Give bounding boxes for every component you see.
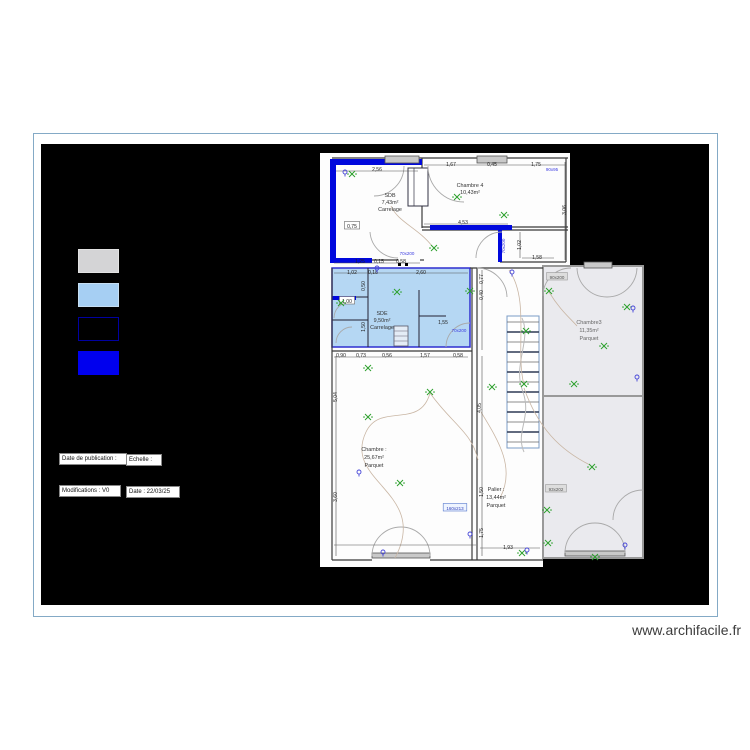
svg-text:1,67: 1,67 <box>446 162 456 168</box>
svg-text:1,25: 1,25 <box>355 259 365 265</box>
window-sdb <box>385 156 419 163</box>
dimension-label: 2,56 <box>372 167 382 173</box>
dimension-label: 160x213 <box>443 504 467 512</box>
svg-text:70x200: 70x200 <box>400 251 415 256</box>
svg-text:93x202: 93x202 <box>549 487 564 492</box>
room-area-sdb: 7,43m² <box>382 200 399 206</box>
dimension-label: 90x95 <box>546 167 559 172</box>
french-door-rail-chambre <box>372 553 430 558</box>
shower-tray <box>394 326 408 346</box>
dimension-label: 0,58 <box>453 353 463 359</box>
svg-text:0,73: 0,73 <box>356 353 366 359</box>
svg-text:2,60: 2,60 <box>416 270 426 276</box>
svg-text:5,04: 5,04 <box>333 392 339 402</box>
sdb-closet <box>408 168 428 206</box>
dimension-label: 1,55 <box>438 320 448 326</box>
dimension-label: 0,58 <box>396 259 406 265</box>
svg-text:1,75: 1,75 <box>531 162 541 168</box>
svg-text:70x200: 70x200 <box>452 328 467 333</box>
svg-text:1,58: 1,58 <box>532 255 542 261</box>
dimension-label: 2,60 <box>416 270 426 276</box>
room-floor-chambre1: Parquet <box>365 463 384 469</box>
svg-text:0,58: 0,58 <box>396 259 406 265</box>
dimension-label: 0,56 <box>382 353 392 359</box>
dimension-label: 0,50 <box>361 281 367 291</box>
svg-text:160x213: 160x213 <box>446 506 464 511</box>
svg-text:1,55: 1,55 <box>438 320 448 326</box>
dimension-label: 93x202 <box>546 485 567 493</box>
svg-text:0,45: 0,45 <box>487 162 497 168</box>
svg-text:4,05: 4,05 <box>477 403 483 413</box>
svg-text:1,50: 1,50 <box>479 487 485 497</box>
svg-text:0,75: 0,75 <box>347 224 357 230</box>
dimension-label: 0,40 <box>479 290 485 300</box>
room-label-chambre1: Chambre : <box>361 447 386 453</box>
sheet-gray-rooms <box>543 266 643 558</box>
svg-text:0,40: 0,40 <box>479 290 485 300</box>
svg-text:1,93: 1,93 <box>503 545 513 551</box>
room-area-chambre1: 25,67m² <box>364 455 384 461</box>
dimension-label: 70x200 <box>452 328 467 333</box>
dimension-label: 0,75 <box>344 222 359 230</box>
dimension-label: 5,04 <box>333 392 339 402</box>
dimension-label: 1,50 <box>361 322 367 332</box>
room-label-palier: Palier : <box>488 487 505 493</box>
svg-text:0,90: 0,90 <box>336 353 346 359</box>
svg-text:2,56: 2,56 <box>372 167 382 173</box>
svg-text:0,58: 0,58 <box>453 353 463 359</box>
room-floor-sde: Carrelage <box>370 325 394 331</box>
svg-text:0,15: 0,15 <box>374 259 384 265</box>
room-area-chambre4: 10,43m² <box>460 190 480 196</box>
dimension-label: 70x200 <box>400 251 415 256</box>
svg-text:1,02: 1,02 <box>347 270 357 276</box>
dimension-label: 0,73 <box>356 353 366 359</box>
room-floor-chambre3: Parquet <box>580 336 599 342</box>
dimension-label: 0,77 <box>479 274 485 284</box>
room-label-chambre3: Chambre3 <box>576 320 601 326</box>
dimension-label: 1,57 <box>420 353 430 359</box>
french-door-rail-gray-room <box>565 551 625 556</box>
window-chambre3 <box>584 262 612 268</box>
dimension-label: 70x200 <box>501 238 506 253</box>
room-area-palier: 13,44m² <box>486 495 506 501</box>
svg-text:3,60: 3,60 <box>333 492 339 502</box>
svg-text:0,56: 0,56 <box>382 353 392 359</box>
svg-text:70x200: 70x200 <box>501 238 506 253</box>
dimension-label: 1,02 <box>347 270 357 276</box>
sheet-top <box>320 153 570 267</box>
svg-text:1,02: 1,02 <box>517 240 523 250</box>
room-area-chambre3: 11,35m² <box>579 328 599 334</box>
room-floor-sdb: Carrelage <box>378 207 402 213</box>
dimension-label: 1,25 <box>355 259 365 265</box>
room-label-sdb: SDB <box>384 193 395 199</box>
svg-text:90x95: 90x95 <box>546 167 559 172</box>
canvas: Date de publication : Echelle : Modifica… <box>0 0 750 750</box>
staircase <box>507 316 539 452</box>
room-area-sde: 9,50m² <box>374 318 391 324</box>
dimension-label: 1,58 <box>532 255 542 261</box>
svg-text:1,75: 1,75 <box>479 528 485 538</box>
room-label-chambre4: Chambre 4 <box>457 183 484 189</box>
dimension-label: 4,53 <box>458 220 468 226</box>
svg-text:3,06: 3,06 <box>562 205 568 215</box>
plan-sheets <box>320 153 643 567</box>
svg-text:0,77: 0,77 <box>479 274 485 284</box>
dimension-label: 1,50 <box>479 487 485 497</box>
svg-text:90x200: 90x200 <box>550 275 565 280</box>
dimension-label: 1,93 <box>503 545 513 551</box>
dimension-label: 0,45 <box>487 162 497 168</box>
dimension-label: 0,90 <box>336 353 346 359</box>
svg-text:1,50: 1,50 <box>361 322 367 332</box>
archifacile-watermark: www.archifacile.fr <box>632 622 741 638</box>
svg-text:0,50: 0,50 <box>361 281 367 291</box>
svg-text:1,57: 1,57 <box>420 353 430 359</box>
dimension-label: 3,60 <box>333 492 339 502</box>
dimension-label: 4,05 <box>477 403 483 413</box>
dimension-label: 1,02 <box>517 240 523 250</box>
room-floor-palier: Parquet <box>487 503 506 509</box>
svg-text:4,53: 4,53 <box>458 220 468 226</box>
dimension-label: 90x200 <box>547 273 568 281</box>
dimension-label: 1,75 <box>479 528 485 538</box>
dimension-label: 3,06 <box>562 205 568 215</box>
dimension-label: 1,67 <box>446 162 456 168</box>
dimension-label: 1,75 <box>531 162 541 168</box>
dimension-label: 0,15 <box>374 259 384 265</box>
room-label-sde: SDE <box>376 311 387 317</box>
